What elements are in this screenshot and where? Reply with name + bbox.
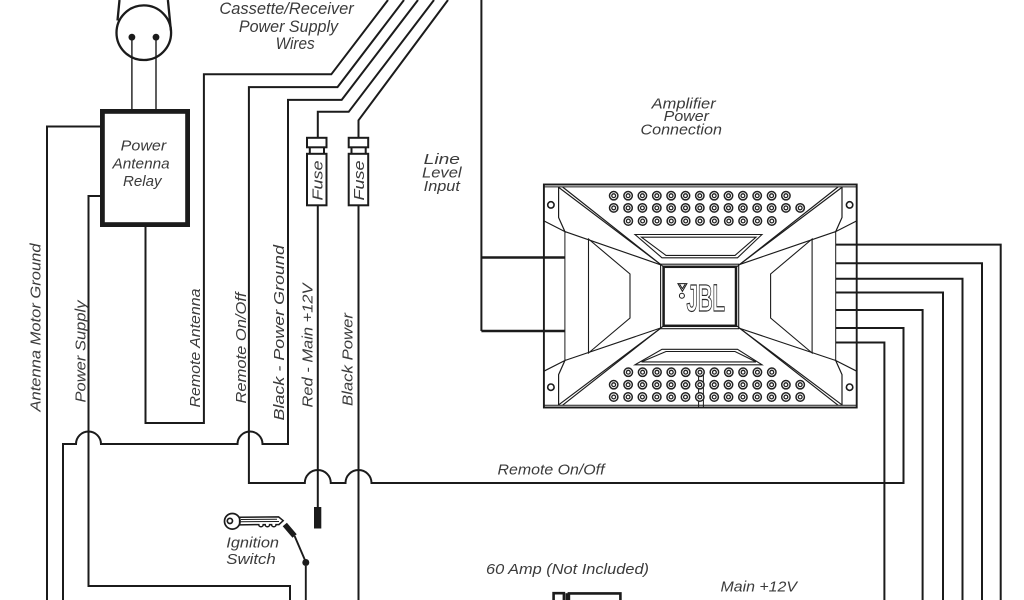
svg-text:Antenna Motor Ground: Antenna Motor Ground bbox=[28, 243, 45, 413]
svg-text:Power: Power bbox=[121, 138, 168, 155]
svg-text:Power Supply: Power Supply bbox=[239, 18, 340, 36]
svg-text:Wires: Wires bbox=[276, 35, 315, 53]
svg-text:Black Power: Black Power bbox=[340, 312, 357, 406]
svg-text:Red - Main +12V: Red - Main +12V bbox=[300, 281, 317, 407]
svg-text:Ignition: Ignition bbox=[226, 535, 279, 552]
svg-text:Remote On/Off: Remote On/Off bbox=[233, 290, 250, 403]
svg-text:Switch: Switch bbox=[226, 551, 275, 568]
svg-text:Relay: Relay bbox=[123, 173, 163, 190]
svg-text:Fuse: Fuse bbox=[309, 161, 326, 201]
svg-text:Power Supply: Power Supply bbox=[73, 299, 90, 403]
svg-text:Connection: Connection bbox=[641, 121, 722, 138]
svg-text:Cassette/Receiver: Cassette/Receiver bbox=[219, 0, 355, 18]
svg-text:Remote On/Off: Remote On/Off bbox=[498, 462, 607, 479]
svg-text:Remote Antenna: Remote Antenna bbox=[187, 289, 204, 408]
svg-text:Black - Power Ground: Black - Power Ground bbox=[271, 244, 288, 420]
svg-text:Main +12V: Main +12V bbox=[721, 579, 800, 596]
svg-text:Fuse: Fuse bbox=[351, 161, 368, 201]
svg-text:Antenna: Antenna bbox=[111, 155, 169, 172]
svg-text:JBL: JBL bbox=[687, 278, 726, 320]
svg-text:Input: Input bbox=[424, 178, 461, 195]
svg-text:60 Amp (Not Included): 60 Amp (Not Included) bbox=[486, 561, 649, 578]
